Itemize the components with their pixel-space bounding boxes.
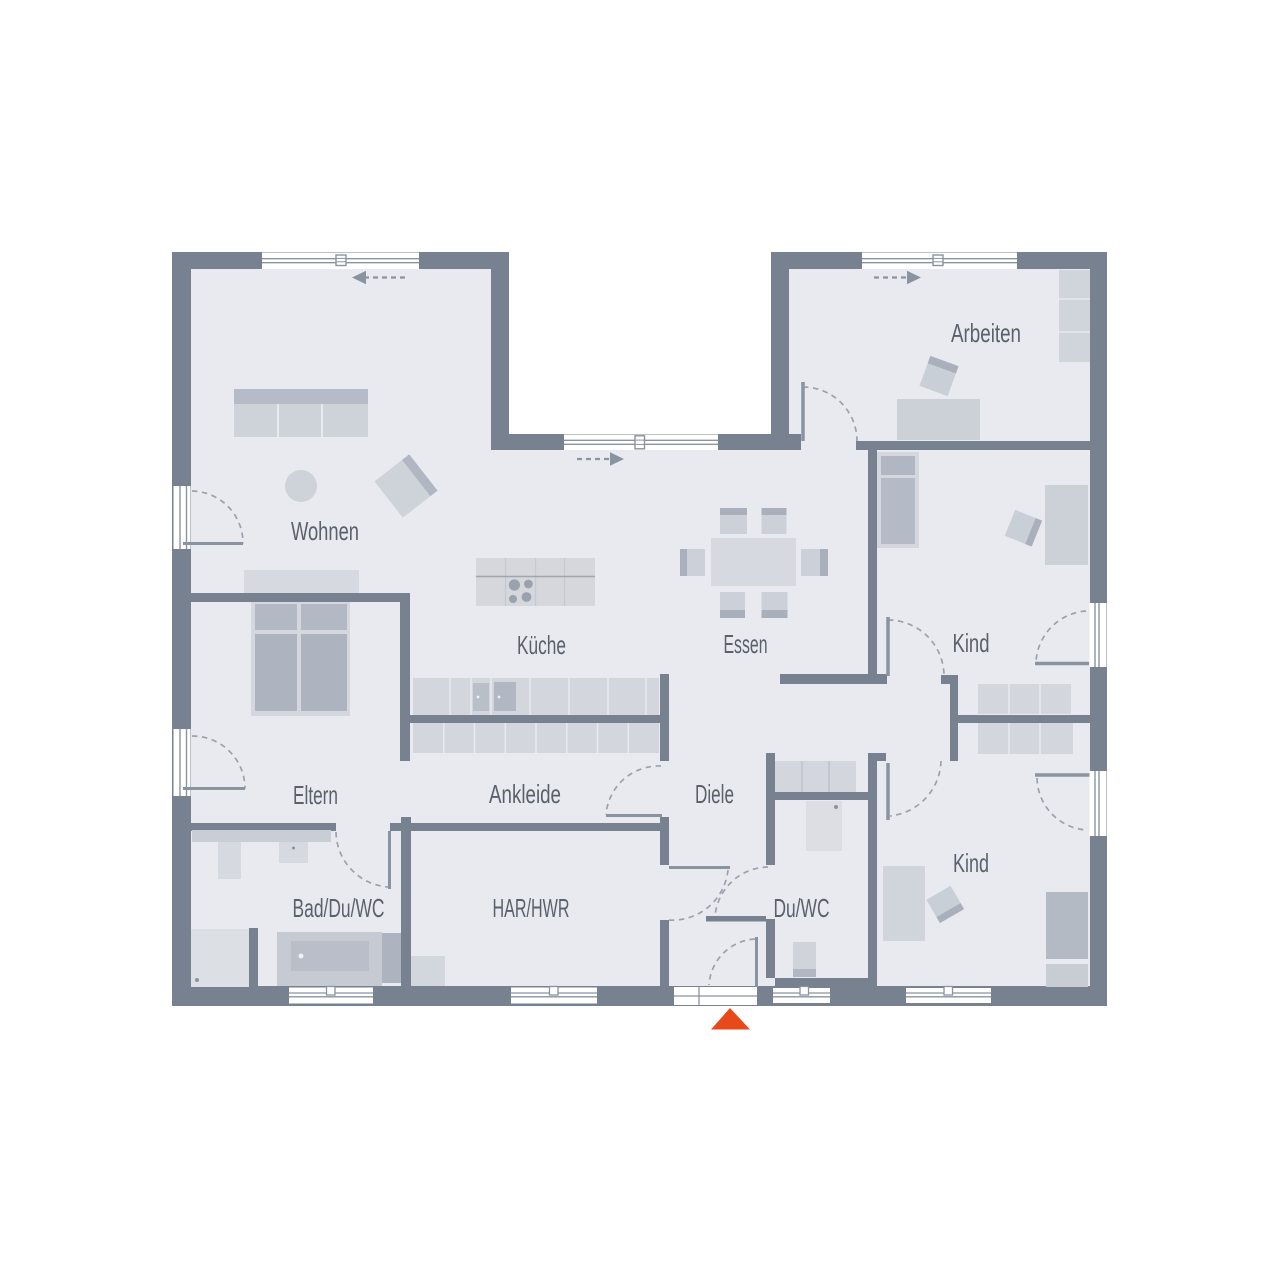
- svg-text:Eltern: Eltern: [293, 780, 338, 810]
- svg-text:Wohnen: Wohnen: [291, 516, 359, 546]
- svg-text:Kind: Kind: [953, 848, 989, 878]
- svg-text:Kind: Kind: [953, 628, 990, 658]
- svg-text:Bad/Du/WC: Bad/Du/WC: [293, 893, 385, 923]
- svg-text:Ankleide: Ankleide: [489, 779, 561, 809]
- svg-text:Essen: Essen: [724, 629, 768, 659]
- svg-text:Du/WC: Du/WC: [774, 893, 830, 923]
- svg-text:Arbeiten: Arbeiten: [951, 318, 1021, 348]
- svg-text:HAR/HWR: HAR/HWR: [493, 893, 570, 923]
- svg-text:Küche: Küche: [517, 630, 566, 660]
- svg-text:Diele: Diele: [695, 779, 734, 809]
